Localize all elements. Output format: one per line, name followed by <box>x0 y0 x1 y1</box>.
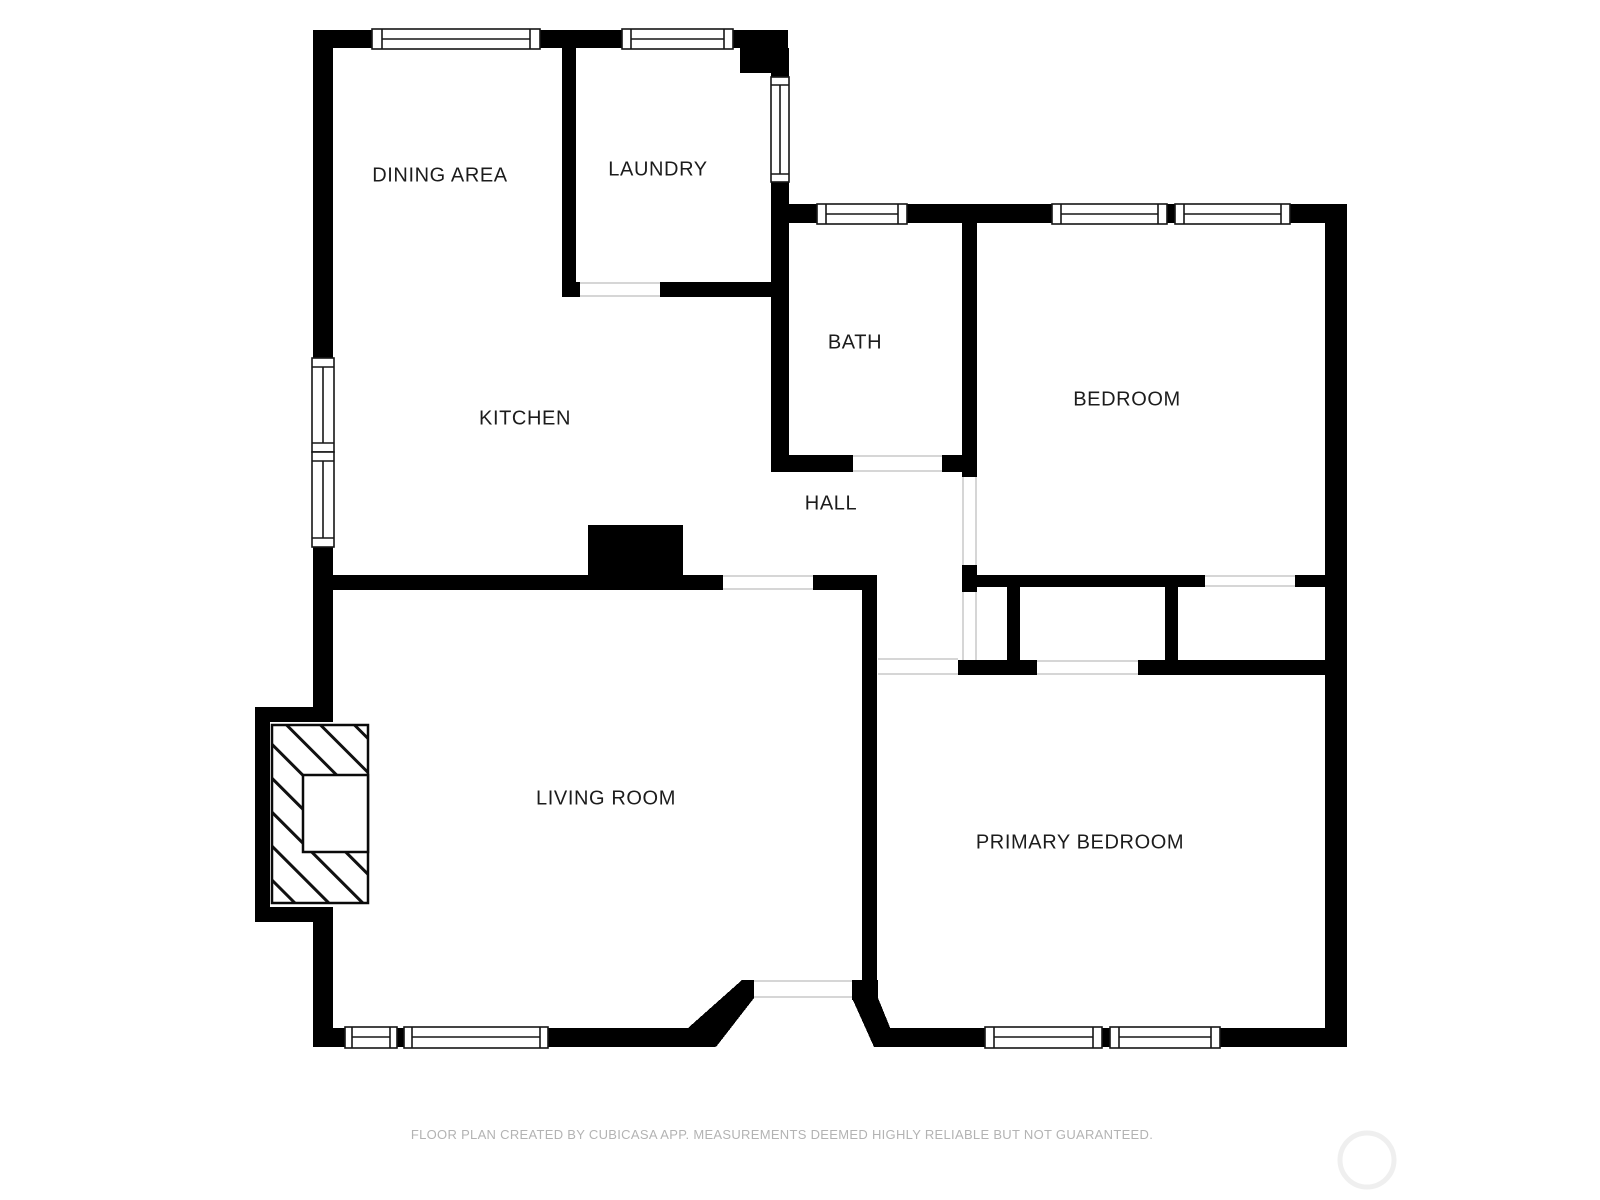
primary-closet-door <box>1037 660 1138 675</box>
window-kitchen-west-upper <box>312 358 334 452</box>
window-bedroom-north-left <box>1052 204 1167 224</box>
window-kitchen-west-lower <box>312 452 334 547</box>
room-label-hall: HALL <box>805 493 857 516</box>
room-label-bath: BATH <box>828 332 882 355</box>
window-bath-north <box>817 204 907 224</box>
window-laundry-north <box>622 29 733 49</box>
room-label-primary-bedroom: PRIMARY BEDROOM <box>976 832 1184 855</box>
window-living-south-right <box>404 1027 548 1048</box>
fireplace <box>272 725 368 903</box>
bath-door <box>853 455 942 472</box>
hall-to-primary-opening <box>878 658 958 675</box>
footer-disclaimer: FLOOR PLAN CREATED BY CUBICASA APP. MEAS… <box>411 1127 1153 1142</box>
window-bedroom-north-right <box>1175 204 1290 224</box>
room-label-living-room: LIVING ROOM <box>536 788 676 811</box>
room-label-bedroom: BEDROOM <box>1073 389 1181 412</box>
laundry-door <box>580 282 660 297</box>
floor-plan-page: DINING AREA LAUNDRY BATH BEDROOM KITCHEN… <box>0 0 1600 1200</box>
cubicasa-watermark-circle <box>1340 1133 1394 1187</box>
front-door <box>754 980 852 998</box>
window-primary-south-right <box>1110 1027 1220 1048</box>
room-label-laundry: LAUNDRY <box>608 159 707 182</box>
hall-closet-opening <box>962 592 977 660</box>
kitchen-counter-block <box>588 525 683 588</box>
room-label-kitchen: KITCHEN <box>479 408 571 431</box>
room-label-dining-area: DINING AREA <box>372 165 508 188</box>
window-living-south-left <box>345 1027 397 1048</box>
bedroom-closet-door <box>1205 575 1295 587</box>
openings <box>580 282 1295 998</box>
window-dining-north <box>372 29 540 49</box>
fireplace-firebox <box>303 775 368 852</box>
kitchen-to-living-opening <box>723 575 813 590</box>
floor-plan-canvas <box>0 0 1600 1200</box>
window-primary-south-left <box>985 1027 1102 1048</box>
bedroom-door <box>962 477 977 565</box>
window-laundry-east <box>771 77 789 182</box>
